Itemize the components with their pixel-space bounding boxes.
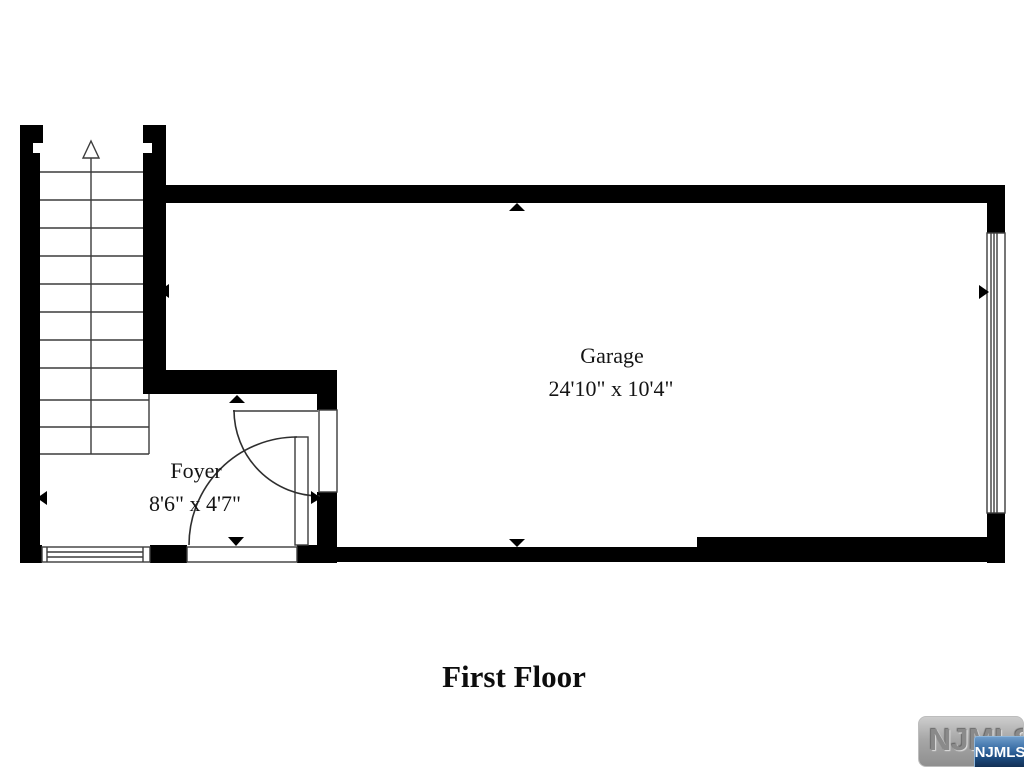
garage-room-label: Garage <box>580 345 644 367</box>
garage-door-frame <box>987 233 1005 513</box>
garage-room-dimensions: 24'10" x 10'4" <box>549 378 674 400</box>
post-notch-left <box>33 143 40 153</box>
wall-foyer-bottom-right <box>297 545 337 563</box>
marker-garage-bottom-icon <box>509 539 525 547</box>
wall-garage-top <box>155 185 1005 203</box>
foyer-room-label: Foyer <box>170 460 221 482</box>
garage-interior-door <box>233 410 337 496</box>
marker-foyer-bottom-icon <box>228 537 244 546</box>
foyer-window <box>42 547 150 562</box>
njmls-logo-badge: NJMLS <box>974 736 1024 767</box>
stairs-up-arrow-icon <box>83 141 99 158</box>
wall-garage-bottom-left <box>337 547 700 562</box>
wall-garage-bottom-right <box>697 537 1005 562</box>
stair-treads-lower <box>40 394 149 454</box>
wall-garage-right-post-top <box>987 185 1005 233</box>
front-door-leaf <box>295 437 308 545</box>
wall-left-top-post <box>20 125 43 143</box>
floor-plan-canvas: Garage 24'10" x 10'4" Foyer 8'6" x 4'7" … <box>0 0 1024 768</box>
njmls-badge-text: NJMLS <box>975 744 1024 761</box>
staircase <box>40 158 149 454</box>
wall-foyer-bottom-mid <box>150 545 187 563</box>
foyer-room-dimensions: 8'6" x 4'7" <box>149 493 241 515</box>
post-notch-right <box>143 143 152 153</box>
floor-plan-title: First Floor <box>442 659 586 695</box>
wall-foyer-east-upper <box>317 394 337 410</box>
window-frame <box>42 547 150 562</box>
wall-stair-right <box>143 125 166 394</box>
wall-left <box>20 125 40 563</box>
wall-foyer-bottom-left <box>20 545 42 563</box>
floor-plan-drawing <box>0 0 1024 768</box>
front-door-threshold <box>187 547 297 562</box>
marker-garage-top-icon <box>509 203 525 211</box>
marker-foyer-top-icon <box>229 395 245 403</box>
wall-foyer-top <box>143 370 337 394</box>
interior-door-opening <box>319 410 337 492</box>
garage-door <box>987 233 1005 513</box>
